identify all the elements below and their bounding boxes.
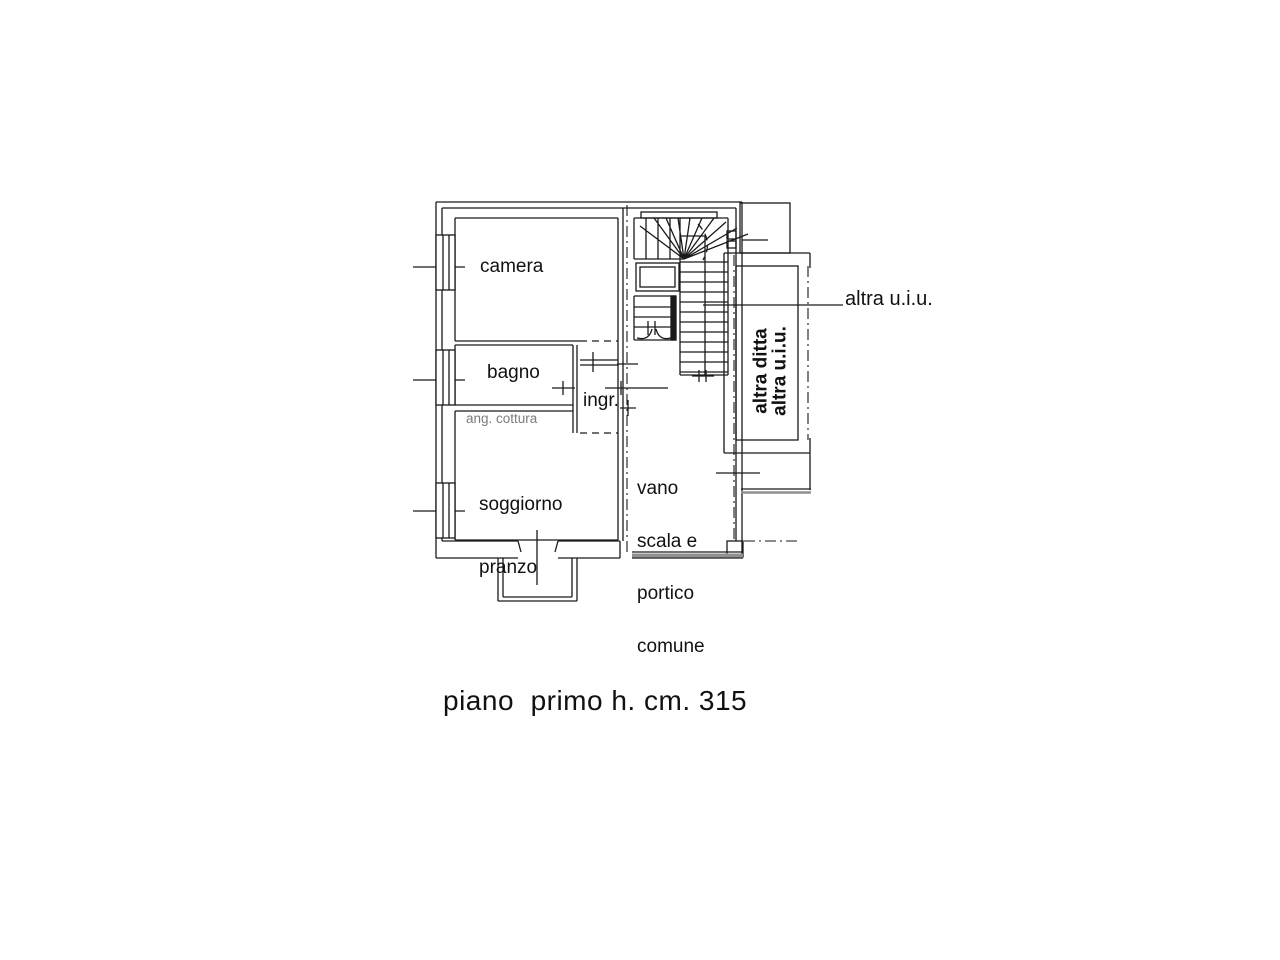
window-symbols — [436, 235, 455, 538]
altra-ditta-line2: altra u.i.u. — [771, 326, 790, 416]
plan-caption: piano primo h. cm. 315 — [443, 686, 747, 715]
room-label-altra-ditta-vertical: altra ditta altra u.i.u. — [753, 326, 790, 416]
room-label-soggiorno-pranzo: soggiorno pranzo — [479, 452, 562, 620]
room-label-vano-line2: scala e — [637, 533, 705, 551]
room-label-vano-line1: vano — [637, 480, 705, 498]
room-label-camera: camera — [480, 257, 543, 277]
altra-ditta-line1: altra ditta — [753, 326, 772, 416]
room-label-soggiorno-line2: pranzo — [479, 557, 562, 578]
room-label-vano-line3: portico — [637, 585, 705, 603]
room-label-vano-scala: vano scala e portico comune — [637, 445, 705, 690]
room-label-bagno: bagno — [487, 363, 540, 383]
room-label-soggiorno-line1: soggiorno — [479, 494, 562, 515]
room-label-vano-line4: comune — [637, 638, 705, 656]
callout-label-altra-uiu: altra u.i.u. — [845, 289, 933, 310]
room-label-ingresso: ingr. — [583, 391, 619, 411]
floor-plan-page: camera bagno ingr. ang. cottura soggiorn… — [0, 0, 1280, 960]
room-label-angolo-cottura: ang. cottura — [466, 412, 537, 426]
